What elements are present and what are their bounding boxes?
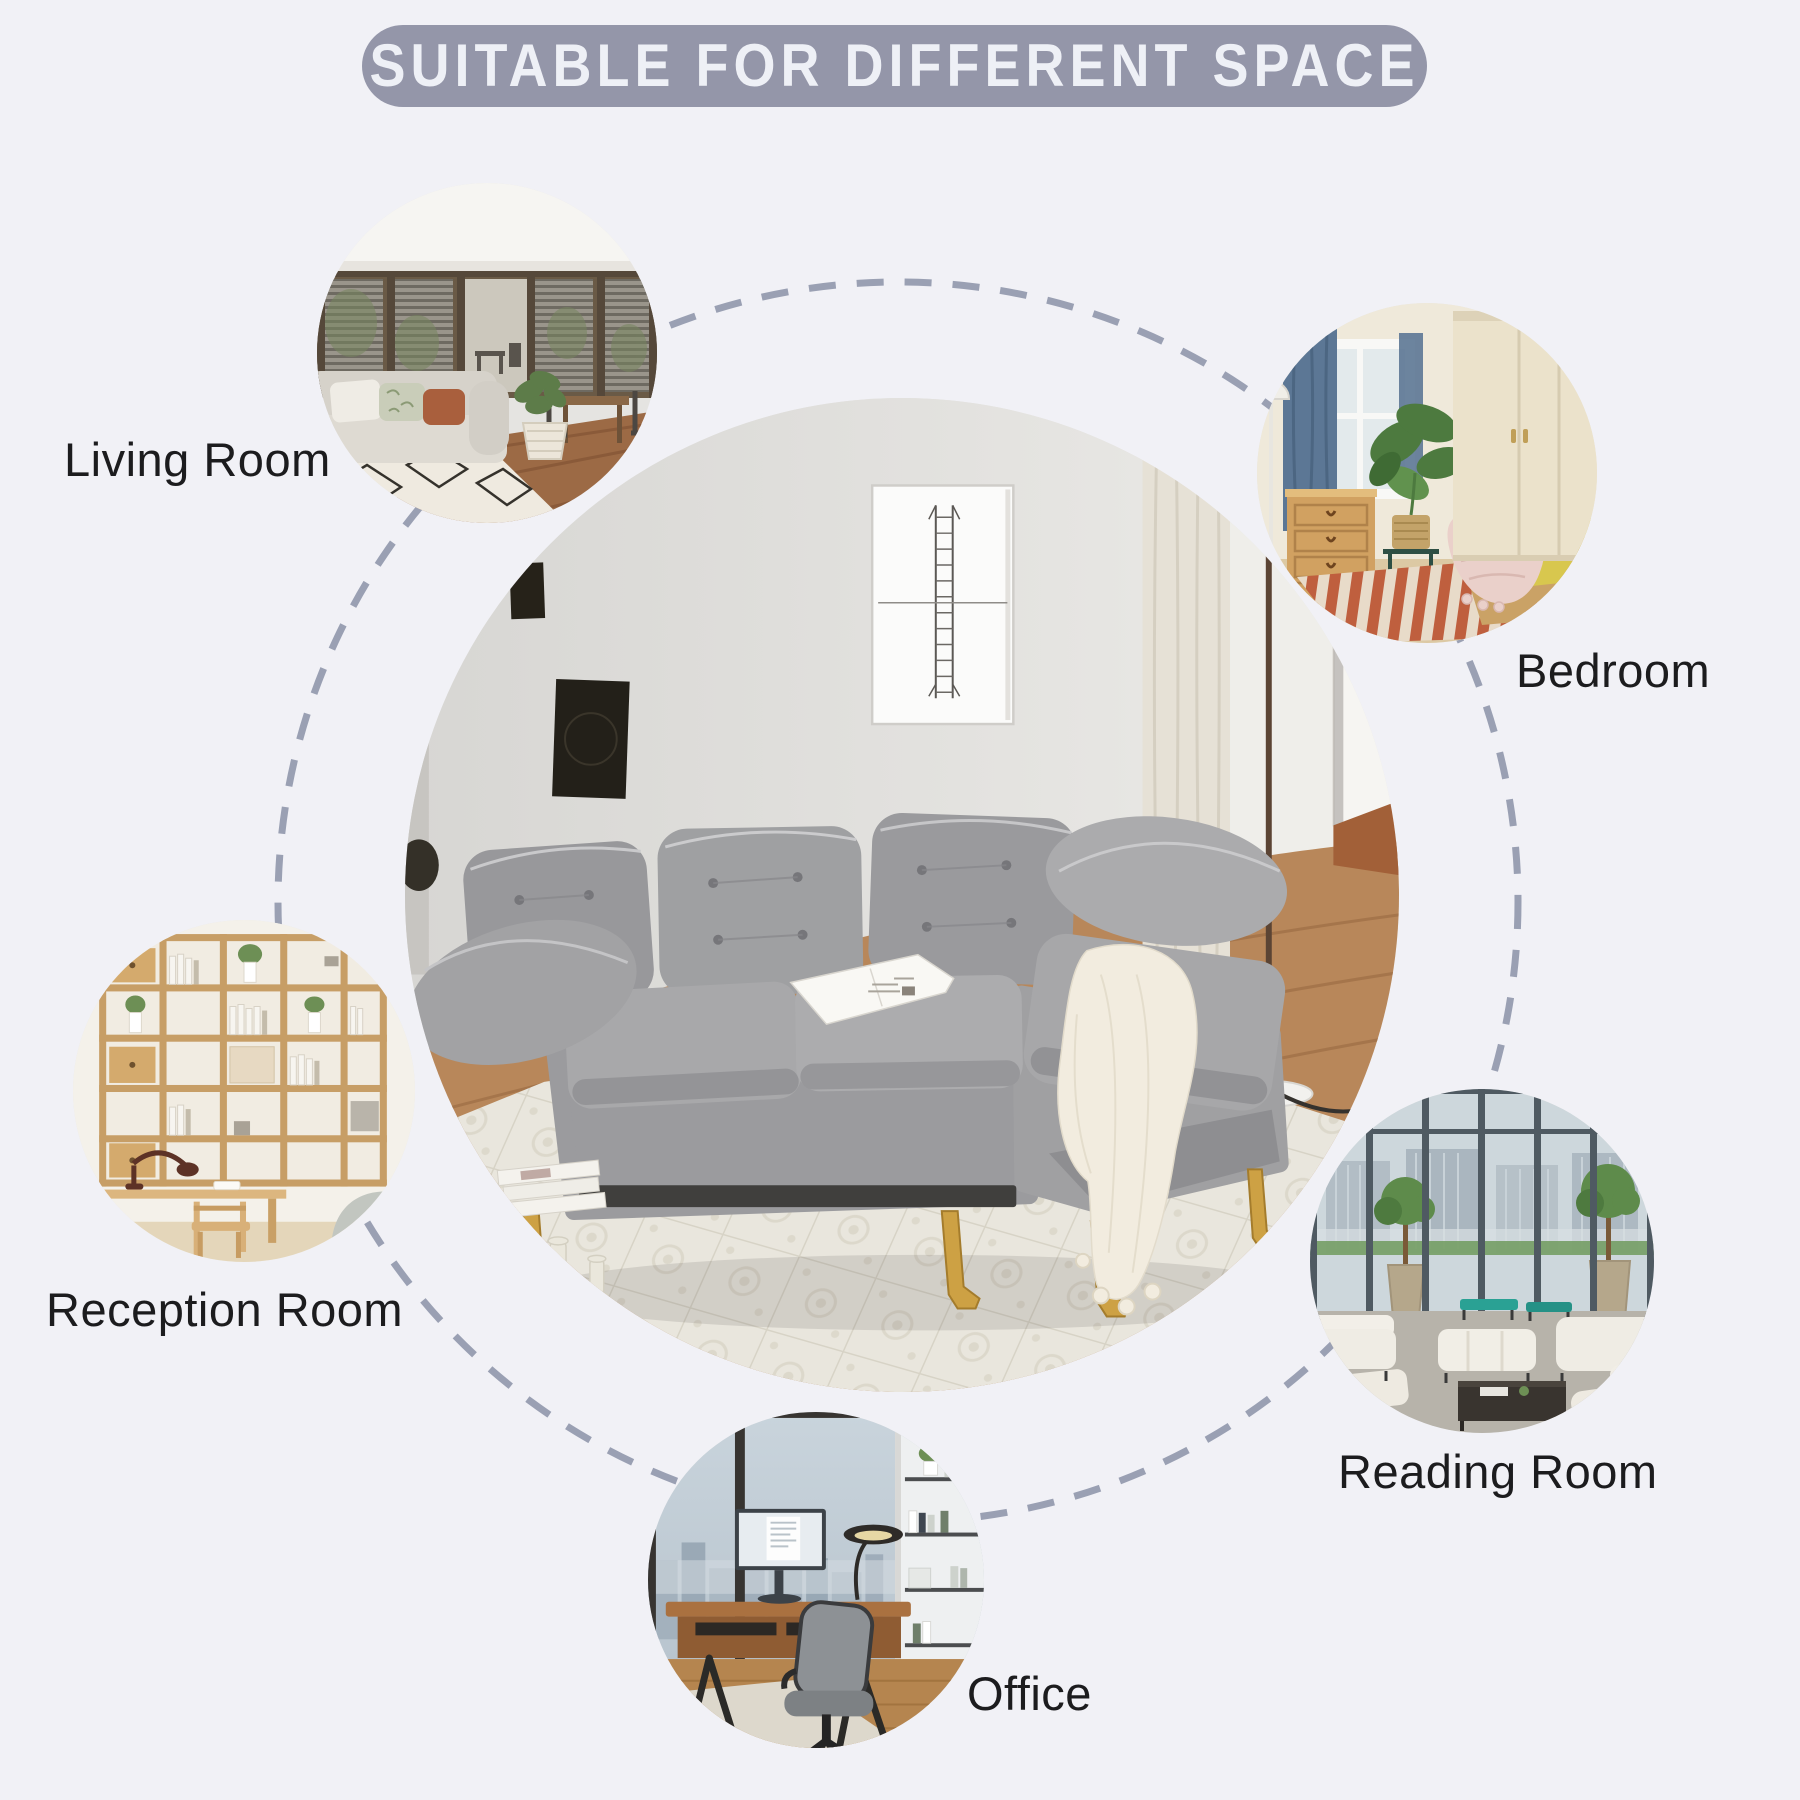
label-reading-room: Reading Room xyxy=(1338,1444,1658,1500)
reception-room-photo xyxy=(73,920,415,1262)
office-scene xyxy=(648,1412,984,1748)
living-room-photo xyxy=(317,183,657,523)
office-photo xyxy=(648,1412,984,1748)
bedroom-scene xyxy=(1257,303,1597,643)
ladder-artwork xyxy=(872,485,1013,724)
label-office: Office xyxy=(967,1666,1092,1722)
label-living-room: Living Room xyxy=(64,432,331,488)
title-banner: SUITABLE FOR DIFFERENT SPACE xyxy=(362,25,1427,107)
main-product-photo xyxy=(405,398,1399,1392)
reading-room-scene xyxy=(1310,1089,1654,1433)
bookshelf xyxy=(99,934,387,1186)
title-text: SUITABLE FOR DIFFERENT SPACE xyxy=(369,31,1419,100)
label-reception-room: Reception Room xyxy=(46,1282,403,1338)
bedroom-photo xyxy=(1257,303,1597,643)
reading-room-photo xyxy=(1310,1089,1654,1433)
sofa-room-scene xyxy=(405,398,1399,1392)
suitable-spaces-infographic: SUITABLE FOR DIFFERENT SPACE Living Room… xyxy=(0,0,1800,1800)
living-room-scene xyxy=(317,183,657,523)
reception-room-scene xyxy=(73,920,415,1262)
label-bedroom: Bedroom xyxy=(1516,643,1710,699)
